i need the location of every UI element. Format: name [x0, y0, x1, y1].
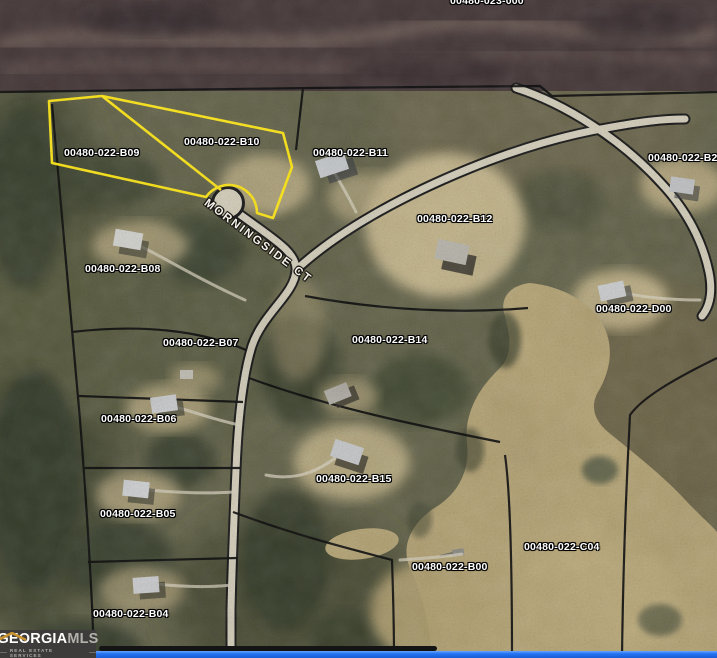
- parcel-label-b10: 00480-022-B10: [184, 136, 260, 148]
- parcel-label-b07: 00480-022-B07: [163, 337, 239, 349]
- bold-boundary-line: [99, 646, 437, 651]
- aerial-basemap: [0, 0, 717, 658]
- parcel-label-b06: 00480-022-B06: [101, 413, 177, 425]
- parcel-label-d00: 00480-022-D00: [596, 303, 672, 315]
- bottom-edge-highlight-bar: [94, 651, 717, 658]
- georgia-mls-watermark: GEORGIAMLS REAL ESTATE SERVICES: [0, 630, 96, 658]
- parcel-label-b12: 00480-022-B12: [417, 213, 493, 225]
- parcel-label-b04: 00480-022-B04: [93, 608, 169, 620]
- parcel-label-b2-partial: 00480-022-B2: [648, 152, 717, 164]
- tagline-rule-right: [89, 652, 96, 653]
- watermark-brand-suffix: MLS: [67, 632, 98, 647]
- parcel-label-c04: 00480-022-C04: [524, 541, 600, 553]
- parcel-map-image: 00480-023-000 00480-022-B09 00480-022-B1…: [0, 0, 717, 658]
- watermark-tagline: REAL ESTATE SERVICES: [10, 648, 86, 658]
- roof-icon: [0, 632, 27, 641]
- parcel-label-b05: 00480-022-B05: [100, 508, 176, 520]
- parcel-label-b00: 00480-022-B00: [412, 561, 488, 573]
- tagline-rule-left: [0, 652, 7, 653]
- parcel-label-b15: 00480-022-B15: [316, 473, 392, 485]
- parcel-label-b08: 00480-022-B08: [85, 263, 161, 275]
- parcel-label-b09: 00480-022-B09: [64, 147, 140, 159]
- parcel-label-b14: 00480-022-B14: [352, 334, 428, 346]
- parcel-label-top-partial: 00480-023-000: [450, 0, 524, 7]
- parcel-label-b11: 00480-022-B11: [313, 147, 388, 159]
- map-grain: [0, 0, 717, 658]
